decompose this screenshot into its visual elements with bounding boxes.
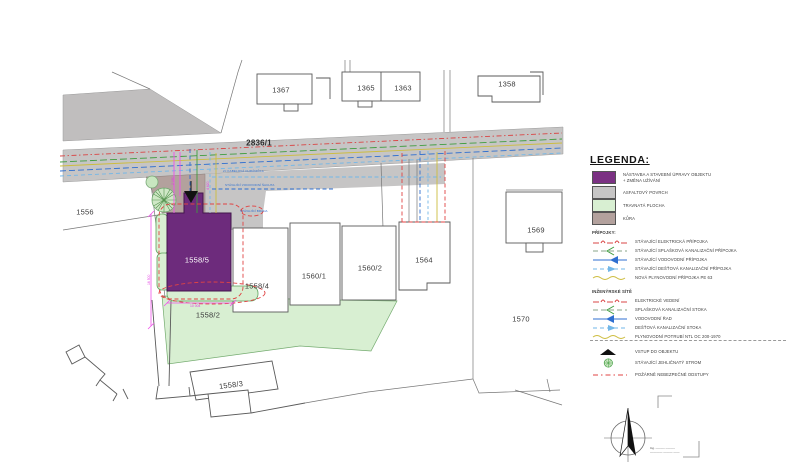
parcel-label-1358: 1358 [498,80,516,89]
parcel-label-1560-1: 1560/1 [302,272,326,281]
swatch-grass [592,199,616,212]
road-label-2836-1: 2836/1 [246,139,272,148]
fine-print-line-2: –––––––– –––––– –––– [650,451,702,455]
legend-label-2: + ZMĚNA UŽÍVÁNÍ [623,178,660,183]
swatch-asphalt [592,186,616,199]
site-plan-page: 1367 1365 1363 1358 2836/1 1556 1569 157… [0,0,800,464]
dimension-text-horizontal: 10 004 [190,304,200,308]
parcel-label-1558-4: 1558/4 [245,282,269,291]
legend-label: VODOVODNÍ ŘAD [635,316,672,321]
legend-separator [590,340,786,341]
legend-item-fire-distance: POŽÁRNĚ NEBEZPEČNÉ ODSTUPY [592,370,709,380]
fine-print: Ing. –––––– –––––– –––––––– –––––– –––– [650,447,702,454]
tree-icon [146,176,158,188]
parcel-label-1367: 1367 [272,86,290,95]
annotation-cable: 2× KABELOVÁ CHRÁNIČKA [223,169,264,173]
legend-label: NÁSTAVBA A STAVEBNÍ ÚPRAVY OBJEKTU [623,172,711,177]
dimension-text-vertical: 16 500 [147,275,151,285]
legend-panel: LEGENDA: NÁSTAVBA A STAVEBNÍ ÚPRAVY OBJE… [588,150,798,410]
legend-item-gas-connection: NOVÁ PLYNOVODNÍ PŘÍPOJKA PE 63 [592,273,712,283]
legend-area-asphalt: ASFALTOVÝ POVRCH [592,186,668,199]
north-arrow-icon [604,408,652,462]
legend-label: STÁVAJÍCÍ JEHLIČNATÝ STROM [635,360,701,365]
legend-label: TRAVNATÁ PLOCHA [623,203,665,208]
parcel-label-1570: 1570 [512,315,530,324]
legend-area-new-building: NÁSTAVBA A STAVEBNÍ ÚPRAVY OBJEKTU + ZMĚ… [592,171,711,184]
legend-label: KŮRA [623,216,635,221]
parcel-label-1363: 1363 [394,84,412,93]
parcel-label-1556: 1556 [76,208,94,217]
legend-label: ASFALTOVÝ POVRCH [623,190,668,195]
annotation-gate: STÁVAJÍCÍ BRÁNA [240,209,268,213]
legend-label: NOVÁ PLYNOVODNÍ PŘÍPOJKA PE 63 [635,275,712,280]
parcel-label-1365: 1365 [357,84,375,93]
parcel-label-1569: 1569 [527,226,545,235]
legend-label: STÁVAJÍCÍ VODOVODNÍ PŘÍPOJKA [635,257,707,262]
parcel-label-1558-5: 1558/5 [185,256,209,265]
legend-section-networks: INŽENÝRSKÉ SÍTĚ [592,289,632,294]
fire-distance-line-sample [592,370,628,380]
legend-label: PLYNOVODNÍ POTRUBÍ NTL OC 200-1970 [635,334,721,339]
parcel-label-1564: 1564 [415,256,433,265]
tree-icon [592,358,628,368]
legend-area-grass: TRAVNATÁ PLOCHA [592,199,665,212]
swatch-bark [592,212,616,225]
legend-label: STÁVAJÍCÍ SPLAŠKOVÁ KANALIZAČNÍ PŘÍPOJKA [635,248,737,253]
legend-label: SPLAŠKOVÁ KANALIZAČNÍ STOKA [635,307,707,312]
parcel-label-1560-2: 1560/2 [358,264,382,273]
annotation-water-shaft: STÁVAJÍCÍ VODOVODNÍ ŠACHTA [225,183,275,187]
legend-label: STÁVAJÍCÍ ELEKTRICKÁ PŘÍPOJKA [635,239,708,244]
legend-label: POŽÁRNĚ NEBEZPEČNÉ ODSTUPY [635,372,709,377]
legend-label: STÁVAJÍCÍ DEŠŤOVÁ KANALIZAČNÍ PŘÍPOJKA [635,266,731,271]
legend-label: DEŠŤOVÁ KANALIZAČNÍ STOKA [635,325,701,330]
legend-item-entrance: VSTUP DO OBJEKTU [592,347,678,357]
legend-area-bark: KŮRA [592,212,635,225]
legend-title: LEGENDA: [590,154,650,166]
dimension-text-small-1: 2 050 [171,177,175,186]
dimension-text-small-2: 4 620 [206,182,210,191]
legend-label: VSTUP DO OBJEKTU [635,349,678,354]
legend-label: ELEKTRICKÉ VEDENÍ [635,298,680,303]
parcel-label-1558-2: 1558/2 [196,311,220,320]
gas-line-sample [592,273,628,283]
legend-item-conifer-tree: STÁVAJÍCÍ JEHLIČNATÝ STROM [592,358,701,368]
legend-section-connections: PŘÍPOJKY: [592,230,616,235]
entrance-arrow-icon [592,347,628,357]
swatch-new-building [592,171,616,184]
